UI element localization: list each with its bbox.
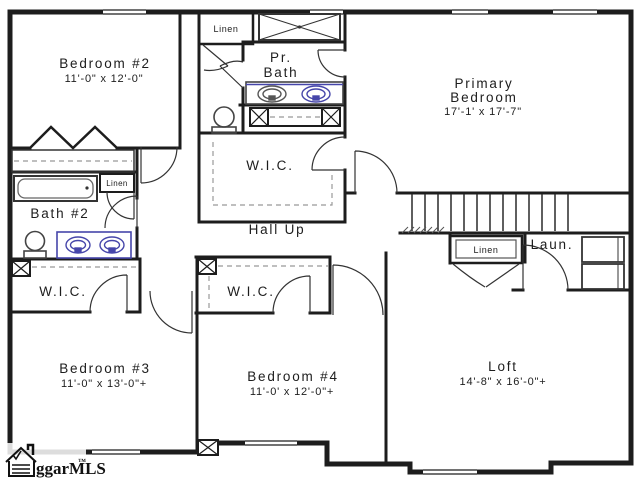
toilet-bath2	[24, 232, 46, 259]
primary-bedroom-label-1: Primary	[454, 76, 513, 91]
loft-dims: 14'-8" x 16'-0"+	[460, 376, 547, 388]
bedroom2-dims: 11'-0" x 12'-0"	[65, 73, 144, 85]
vanity-bath2	[57, 232, 131, 258]
linen-top-label: Linen	[213, 24, 238, 34]
wic-primary-label: W.I.C.	[246, 158, 294, 173]
bedroom2-closet	[12, 127, 134, 172]
floor-plan-drawing: Bedroom #2 11'-0" x 12'-0" Primary Bedro…	[0, 0, 640, 480]
bedroom3-label: Bedroom #3	[59, 361, 151, 376]
bedroom4-label: Bedroom #4	[247, 369, 339, 384]
bedroom3-dims: 11'-0" x 13'-0"+	[61, 378, 147, 390]
mls-watermark: ggarMLS ™	[0, 443, 106, 480]
pr-bath-label-2: Bath	[264, 65, 299, 80]
bedroom2-label: Bedroom #2	[59, 56, 151, 71]
linen-hall-label: Linen	[473, 245, 498, 255]
toilet-pr-bath	[212, 107, 236, 133]
bedroom4-dims: 11'-0' x 12'-0"+	[250, 386, 334, 398]
vanity-pr-bath	[246, 82, 343, 104]
bathtub	[14, 176, 97, 201]
watermark-tm: ™	[78, 457, 86, 466]
hall-up-label: Hall Up	[249, 222, 306, 237]
linen-bath2-label: Linen	[106, 179, 128, 188]
floor-plan: Bedroom #2 11'-0" x 12'-0" Primary Bedro…	[0, 0, 640, 480]
bath2-label: Bath #2	[30, 206, 89, 221]
x-box	[198, 440, 218, 455]
watermark-text: ggarMLS	[36, 459, 106, 478]
sink	[258, 86, 286, 102]
sink	[302, 86, 330, 102]
primary-closet-band	[250, 108, 340, 126]
staircase	[402, 194, 568, 233]
wic-bedroom3-label: W.I.C.	[39, 284, 87, 299]
laundry-label: Laun.	[531, 237, 574, 252]
x-box	[12, 261, 30, 276]
x-box	[198, 259, 216, 274]
shower	[259, 14, 340, 40]
room-labels: Bedroom #2 11'-0" x 12'-0" Primary Bedro…	[30, 24, 573, 398]
primary-bedroom-label-2: Bedroom	[450, 90, 517, 105]
washer-dryer	[582, 237, 624, 289]
wic-bedroom4-label: W.I.C.	[227, 284, 275, 299]
pr-bath-label-1: Pr.	[270, 50, 292, 65]
loft-label: Loft	[488, 359, 518, 374]
sink	[66, 237, 124, 253]
primary-bedroom-dims: 17'-1' x 17'-7"	[444, 106, 522, 118]
linen-closets	[100, 13, 522, 263]
